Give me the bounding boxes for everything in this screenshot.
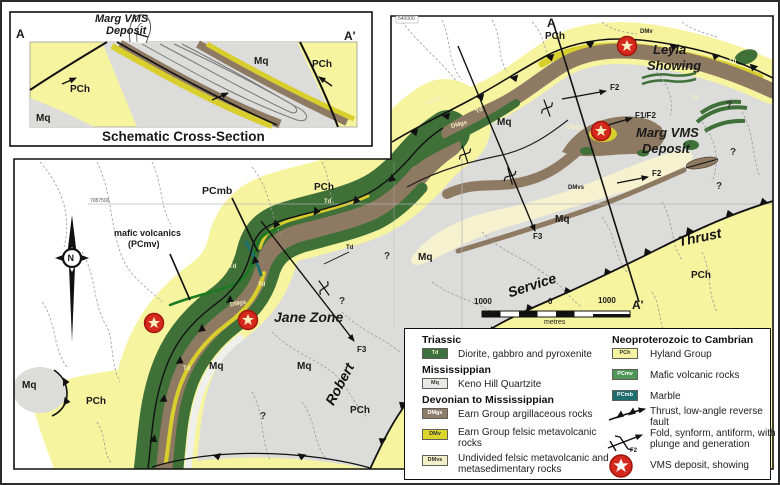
legend-label-vms: VMS deposit, showing	[650, 460, 749, 471]
ri-unit-td-b: Td	[691, 95, 698, 101]
vms-star-jane-west	[145, 314, 164, 333]
legend-label-fold: Fold, synform, antiform, with plunge and…	[650, 428, 778, 450]
vms-star-jane	[239, 311, 258, 330]
legend-swatch-dmgs: DMgs	[422, 408, 448, 419]
cs-deposit-label-2: Deposit	[106, 26, 146, 37]
legend-header-dev-miss: Devonian to Mississippian	[422, 395, 554, 407]
legend-label-dmgs: Earn Group argillaceous rocks	[458, 409, 593, 420]
mm-unit-td-d: Td	[258, 282, 265, 288]
ri-unit-pch-lower: PCh	[691, 271, 711, 281]
ri-marker-a-prime: A'	[632, 299, 644, 311]
vms-deposit-icon	[608, 453, 634, 479]
mm-q-b: ?	[339, 297, 345, 307]
legend-swatch-pcmv: PCmv	[612, 369, 638, 380]
mm-unit-td-a: Td	[324, 199, 331, 205]
ri-unit-mq-b: Mq	[555, 215, 569, 225]
vms-star-leyla	[618, 37, 637, 56]
mm-unit-pch-a: PCh	[314, 183, 334, 193]
legend-swatch-td: Td	[422, 348, 448, 359]
legend-label-thrust: Thrust, low-angle reverse fault	[650, 406, 768, 428]
legend-label-td: Diorite, gabbro and pyroxenite	[458, 349, 592, 360]
mm-unit-mq-a: Mq	[209, 362, 223, 372]
ri-leyla-1: Leyla	[653, 43, 686, 56]
legend-label-dmvs: Undivided felsic metavolcanic and metase…	[458, 453, 623, 475]
mm-q-a: ?	[260, 412, 266, 422]
vms-star-marg	[592, 122, 611, 141]
mm-jane-zone: Jane Zone	[274, 310, 343, 324]
ri-marg-2: Deposit	[642, 142, 690, 155]
legend-swatch-pch: PCh	[612, 348, 638, 359]
scale-left: 1000	[474, 298, 492, 306]
mm-f3: F3	[357, 346, 366, 354]
ri-f2-lower: F2	[652, 170, 661, 178]
mm-unit-mq-b: Mq	[297, 362, 311, 372]
mm-unit-pch-c: PCh	[350, 406, 370, 416]
mm-mafic-label-1: mafic volcanics	[114, 229, 181, 238]
ri-unit-dmv: DMv	[640, 29, 653, 35]
ri-unit-dmgs-c: DMgs	[566, 125, 582, 131]
cs-marker-a-prime: A'	[344, 30, 356, 42]
mm-unit-pcmb: PCmb	[202, 186, 232, 197]
cs-unit-mq-left: Mq	[36, 114, 50, 124]
cs-unit-mq-right: Mq	[254, 57, 268, 67]
scale-unit: metres	[544, 319, 565, 326]
legend: Triassic Td Diorite, gabbro and pyroxeni…	[404, 328, 771, 480]
legend-label-dmv: Earn Group felsic metavolcanic rocks	[458, 427, 618, 449]
mm-unit-td-b: Td	[346, 245, 353, 251]
ri-unit-mq-a: Mq	[497, 118, 511, 128]
mm-unit-td-c: Td	[229, 264, 236, 270]
ri-q-b: ?	[730, 148, 736, 158]
legend-swatch-dmv: DMv	[422, 429, 448, 440]
cs-deposit-label-1: Marg VMS	[95, 14, 148, 25]
legend-label-mq: Keno Hill Quartzite	[458, 379, 541, 390]
ri-q-c: ?	[716, 182, 722, 192]
ri-leyla-2: Showing	[647, 59, 701, 72]
thrust-fault-icon	[606, 404, 648, 426]
cs-unit-pch-left: PCh	[70, 85, 90, 95]
ri-q-a: ?	[726, 101, 732, 111]
legend-swatch-mq: Mq	[422, 378, 448, 389]
ri-f1f2: F1/F2	[635, 112, 656, 120]
scale-right: 1000	[598, 297, 616, 305]
legend-header-triassic: Triassic	[422, 335, 461, 347]
mm-mafic-label-2: (PCmv)	[128, 240, 160, 249]
ri-f3: F3	[533, 233, 542, 241]
legend-label-pcmb: Marble	[650, 391, 681, 402]
legend-label-pch: Hyland Group	[650, 349, 712, 360]
ri-unit-td-a: Td	[729, 59, 736, 65]
mm-unit-pch-b: PCh	[86, 397, 106, 407]
ri-unit-mq-c: Mq	[418, 253, 432, 263]
legend-header-neo-camb: Neoproterozoic to Cambrian	[612, 335, 753, 347]
legend-header-mississippian: Mississippian	[422, 365, 491, 377]
scale-mid: 0	[548, 298, 552, 306]
cs-caption: Schematic Cross-Section	[102, 130, 265, 144]
ri-grid-label: 540000	[398, 17, 415, 22]
geological-map-figure: Marg VMS Deposit A A' PCh PCh Mq Mq Sche…	[0, 0, 780, 485]
ri-marg-1: Marg VMS	[636, 126, 699, 139]
scale-bar	[482, 311, 630, 317]
legend-swatch-pcmb: PCmb	[612, 390, 638, 401]
mm-unit-mq-c: Mq	[22, 381, 36, 391]
mm-unit-td-e: Td	[183, 366, 190, 372]
ri-marker-a: A	[547, 17, 556, 29]
compass-n-label: N	[68, 253, 75, 263]
ri-unit-pch: PCh	[545, 32, 565, 42]
ri-unit-dmvs: DMvs	[568, 185, 584, 191]
legend-label-pcmv: Mafic volcanic rocks	[650, 370, 739, 381]
cs-unit-pch-right: PCh	[312, 60, 332, 70]
ri-q-d: ?	[384, 252, 390, 262]
ri-f2-upper: F2	[610, 84, 619, 92]
cross-section-art	[10, 12, 372, 146]
cs-marker-a: A	[16, 28, 25, 40]
legend-swatch-dmvs: DMvs	[422, 455, 448, 466]
fold-axis-icon: F2	[604, 428, 650, 454]
mm-grid-label: 7087500	[90, 199, 109, 204]
